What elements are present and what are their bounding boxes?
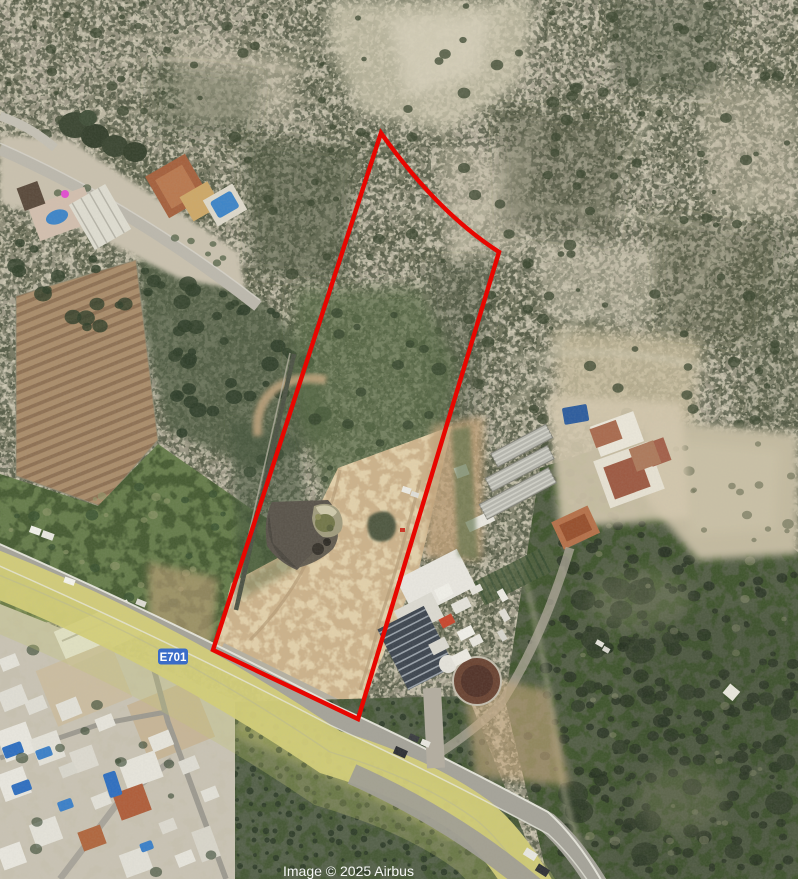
svg-text:Image © 2025 Airbus: Image © 2025 Airbus	[283, 863, 414, 879]
svg-text:E701: E701	[160, 652, 187, 664]
